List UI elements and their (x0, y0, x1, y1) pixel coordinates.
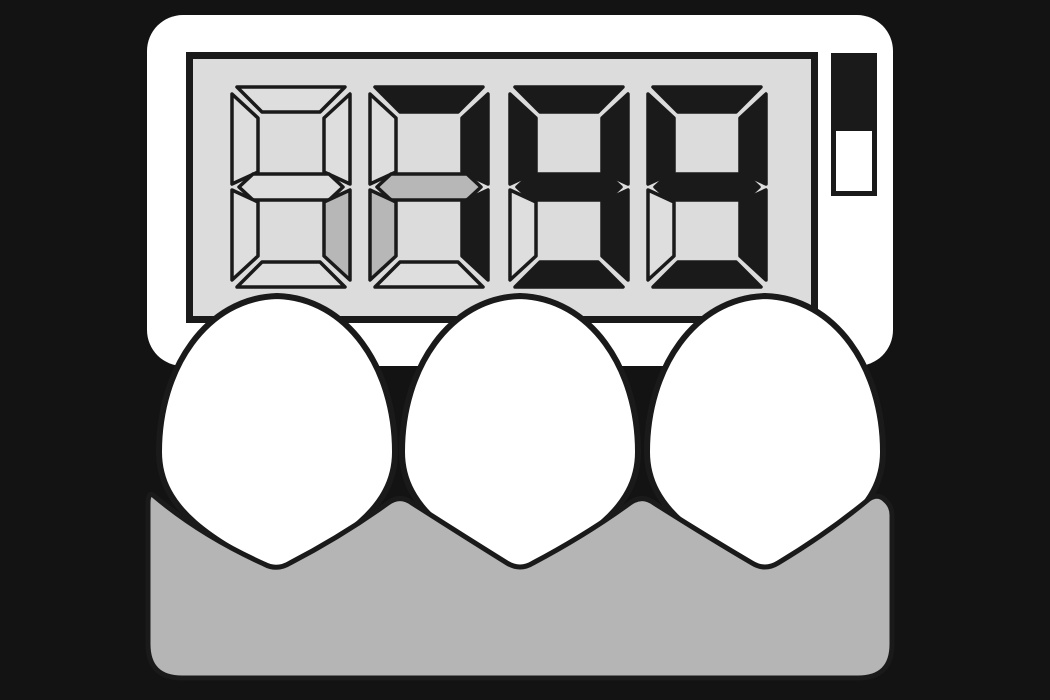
egg-timer-illustration (0, 0, 1050, 700)
segment-g (377, 174, 481, 200)
battery-indicator-level (831, 53, 877, 131)
segment-g (239, 174, 343, 200)
segment-g (517, 174, 621, 200)
battery-indicator (831, 53, 877, 194)
segment-g (655, 174, 759, 200)
eggs-group (159, 296, 883, 574)
scene (0, 0, 1050, 700)
